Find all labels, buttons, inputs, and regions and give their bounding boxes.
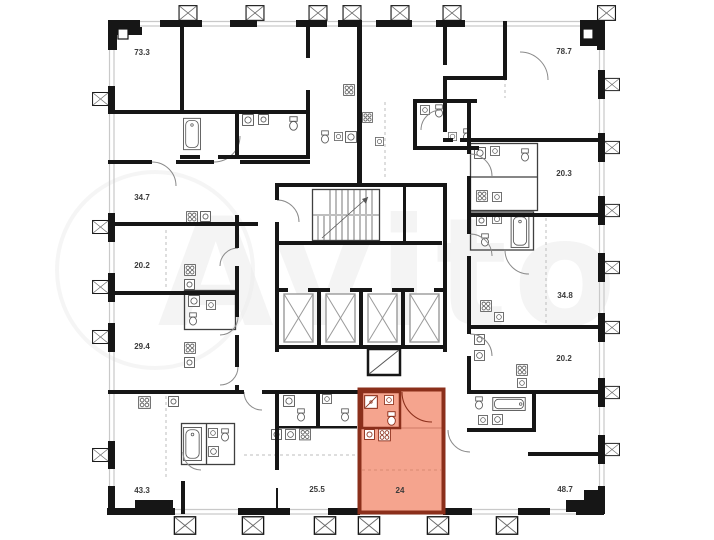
stove-icon [139,397,151,409]
window-box-icon [605,443,620,455]
window-box-icon [391,6,409,21]
stove-icon [185,343,196,354]
window-box-icon [605,321,620,333]
washer-icon [493,415,503,425]
window-box-icon [309,6,327,21]
elevator-shaft [284,294,313,342]
sink-icon [169,397,179,407]
elevator-shaft [326,294,355,342]
toilet-icon [290,117,298,130]
area-label: 34.7 [134,193,150,202]
window-box-icon [93,330,109,343]
area-label: 48.7 [557,485,573,494]
sink-icon [207,301,216,310]
sink-icon [201,212,211,222]
window-box-icon [93,280,109,293]
window-box-icon [314,517,335,534]
washer-icon [475,351,485,361]
stove-icon [517,365,528,376]
toilet-icon [388,412,396,425]
stove-icon [300,429,311,440]
sink-icon [334,132,342,140]
sink-icon [421,106,430,115]
area-label: 34.8 [557,291,573,300]
sink-icon [209,429,218,438]
elevator-shaft [368,294,397,342]
toilet-icon [298,409,305,421]
sink-icon [477,216,487,226]
toilet-icon [190,313,197,325]
toilet-icon [476,397,483,409]
bathtub-icon [493,398,525,411]
window-box-icon [174,517,195,534]
toilet-icon [322,131,329,143]
sink-icon [375,137,383,145]
sink-icon [495,313,504,322]
washer-icon [209,447,219,457]
window-box-icon [343,6,361,21]
stove-icon [477,191,488,202]
sink-icon [185,280,195,290]
washer-icon [346,132,357,143]
sink-icon [259,115,269,125]
toilet-icon [222,429,229,441]
sink-icon [479,416,488,425]
elevator-shaft [410,294,439,342]
stove-icon [344,85,355,96]
window-box-icon [443,6,461,21]
window-box-icon [93,220,109,233]
stove-icon [187,212,198,223]
area-label-highlighted: 24 [396,486,405,495]
window-box-icon [598,6,616,21]
window-box-icon [427,517,448,534]
floor-plan-image: Avito [0,0,714,540]
toilet-icon [342,409,349,421]
washer-icon [243,115,254,126]
sink-icon [493,193,502,202]
bathtub-icon [511,215,529,248]
sink-icon [323,395,332,404]
bathtub-icon [184,427,202,460]
sink-icon [491,147,500,156]
toilet-icon [522,149,529,161]
stove-icon [379,429,391,441]
bathtub-icon [184,118,201,149]
window-box-icon [358,517,379,534]
stove-icon [481,301,492,312]
area-label: 29.4 [134,342,150,351]
sink-icon [185,358,195,368]
sink-icon [365,430,375,440]
window-box-icon [605,78,620,90]
washer-icon [284,396,295,407]
window-box-icon [93,92,109,105]
area-label: 20.2 [134,261,150,270]
floor-plan: Avito [0,0,714,540]
window-box-icon [496,517,517,534]
window-box-icon [179,6,197,21]
area-label: 20.2 [556,354,572,363]
window-box-icon [605,204,620,216]
window-box-icon [605,141,620,153]
area-label: 43.3 [134,486,150,495]
window-box-icon [605,386,620,398]
window-box-icon [246,6,264,21]
area-label: 25.5 [309,485,325,494]
service-shaft [368,349,400,375]
stove-icon [363,113,373,123]
window-box-icon [93,448,109,461]
sink-icon [385,396,394,405]
area-label: 20.3 [556,169,572,178]
shower-icon [365,396,378,409]
window-box-icon [242,517,263,534]
area-label: 78.7 [556,47,572,56]
stove-icon [185,265,196,276]
window-box-icon [605,261,620,273]
area-label: 73.3 [134,48,150,57]
washer-icon [189,296,200,307]
sink-icon [518,379,527,388]
washer-icon [286,430,296,440]
